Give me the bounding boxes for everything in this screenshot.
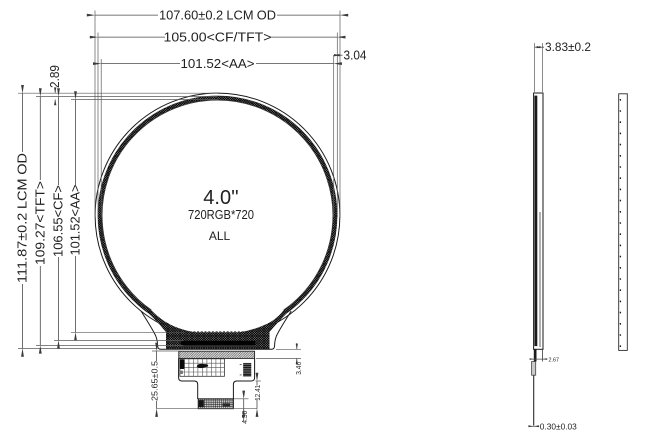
svg-text:2.67: 2.67 — [549, 357, 560, 363]
svg-text:4.0'': 4.0'' — [203, 187, 238, 209]
svg-text:ALL: ALL — [209, 229, 231, 243]
svg-text:101.52<AA>: 101.52<AA> — [68, 185, 83, 256]
svg-text:111.87±0.2 LCM OD: 111.87±0.2 LCM OD — [15, 153, 30, 283]
svg-text:3.83±0.2: 3.83±0.2 — [545, 42, 591, 54]
svg-text:0.30±0.03: 0.30±0.03 — [540, 423, 577, 432]
svg-text:109.27<TFT>: 109.27<TFT> — [32, 181, 47, 265]
svg-text:3.04: 3.04 — [344, 47, 367, 62]
svg-text:720RGB*720: 720RGB*720 — [188, 208, 254, 222]
svg-text:25.65±0.5: 25.65±0.5 — [151, 361, 160, 401]
svg-text:106.55<CF>: 106.55<CF> — [51, 185, 66, 257]
svg-text:12.41: 12.41 — [255, 385, 262, 401]
svg-text:4.50: 4.50 — [242, 411, 249, 424]
svg-text:107.60±0.2 LCM OD: 107.60±0.2 LCM OD — [159, 7, 276, 22]
svg-text:2.89: 2.89 — [47, 65, 62, 88]
svg-text:3.46: 3.46 — [296, 362, 303, 375]
svg-text:101.52<AA>: 101.52<AA> — [181, 56, 255, 71]
svg-text:105.00<CF/TFT>: 105.00<CF/TFT> — [164, 29, 272, 44]
